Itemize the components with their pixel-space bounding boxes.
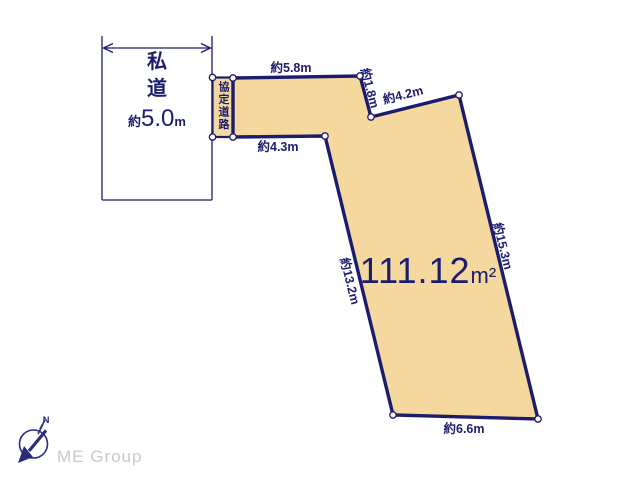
brand-logo-text: ME Group [57,447,142,467]
private-road-width: 約5.0m [102,105,212,133]
parcel-polygon [233,76,538,419]
plot-drawing: 約5.8m 約1.8m 約4.2m 約15.3m 約6.6m 約13.2m 約4… [0,0,640,480]
edge-label-top: 約5.8m [271,60,312,75]
land-plot-diagram: 約5.8m 約1.8m 約4.2m 約15.3m 約6.6m 約13.2m 約4… [0,0,640,480]
private-road-name-char1: 私 [102,49,212,76]
private-road-name-char2: 道 [102,76,212,103]
private-road-box: 私 道 約5.0m [102,49,212,133]
edge-label-upper-right: 約4.2m [381,82,424,106]
agreement-road-label: 協定道路 [215,81,231,139]
compass-logo-icon: N [14,413,58,469]
edge-label-bottom: 約6.6m [444,421,485,436]
compass-north-letter: N [43,415,50,426]
edge-label-upper-left: 約4.3m [258,139,299,154]
